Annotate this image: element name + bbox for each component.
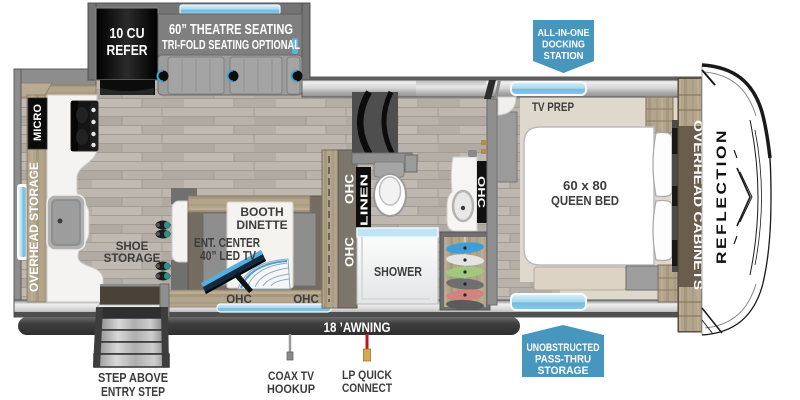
svg-text:COAX TV: COAX TV [268, 369, 314, 383]
svg-text:ENTRY STEP: ENTRY STEP [101, 384, 165, 399]
svg-text:SHOWER: SHOWER [374, 265, 422, 279]
svg-text:CONNECT: CONNECT [342, 381, 393, 395]
svg-text:LP QUICK: LP QUICK [342, 368, 392, 382]
svg-text:ENT. CENTER: ENT. CENTER [194, 236, 260, 250]
svg-text:DOCKING: DOCKING [542, 39, 585, 51]
svg-text:REFER: REFER [107, 43, 148, 59]
svg-text:QUEEN BED: QUEEN BED [551, 194, 619, 208]
svg-text:40” LED TV: 40” LED TV [200, 249, 257, 263]
svg-text:18 ’AWNING: 18 ’AWNING [324, 320, 391, 335]
svg-text:STEP ABOVE: STEP ABOVE [98, 370, 168, 385]
svg-text:60” THEATRE SEATING: 60” THEATRE SEATING [169, 21, 293, 38]
svg-text:LINEN: LINEN [360, 174, 371, 226]
svg-text:DINETTE: DINETTE [236, 218, 287, 232]
svg-text:HOOKUP: HOOKUP [267, 382, 315, 396]
svg-text:OVERHEAD CABINETS: OVERHEAD CABINETS [691, 120, 703, 290]
svg-text:TV PREP: TV PREP [532, 102, 574, 114]
svg-text:OVERHEAD STORAGE: OVERHEAD STORAGE [29, 162, 41, 292]
svg-text:OHC: OHC [345, 174, 357, 204]
svg-text:BOOTH: BOOTH [240, 205, 283, 219]
svg-text:STATION: STATION [544, 50, 584, 62]
svg-text:STORAGE: STORAGE [104, 253, 161, 265]
svg-text:TRI-FOLD SEATING OPTIONAL: TRI-FOLD SEATING OPTIONAL [162, 37, 300, 52]
svg-text:OHC: OHC [345, 237, 357, 267]
svg-text:STORAGE: STORAGE [538, 365, 589, 377]
svg-text:PASS-THRU: PASS-THRU [535, 354, 591, 366]
svg-text:10 CU: 10 CU [110, 26, 145, 42]
svg-text:MICRO: MICRO [32, 104, 44, 141]
svg-text:SHOE: SHOE [116, 241, 149, 253]
svg-text:60 x 80: 60 x 80 [563, 179, 607, 193]
svg-text:ALL-IN-ONE: ALL-IN-ONE [538, 27, 590, 39]
svg-text:OHC: OHC [475, 176, 487, 209]
svg-text:UNOBSTRUCTED: UNOBSTRUCTED [527, 342, 600, 354]
svg-text:REFLECTION: REFLECTION [714, 128, 729, 264]
